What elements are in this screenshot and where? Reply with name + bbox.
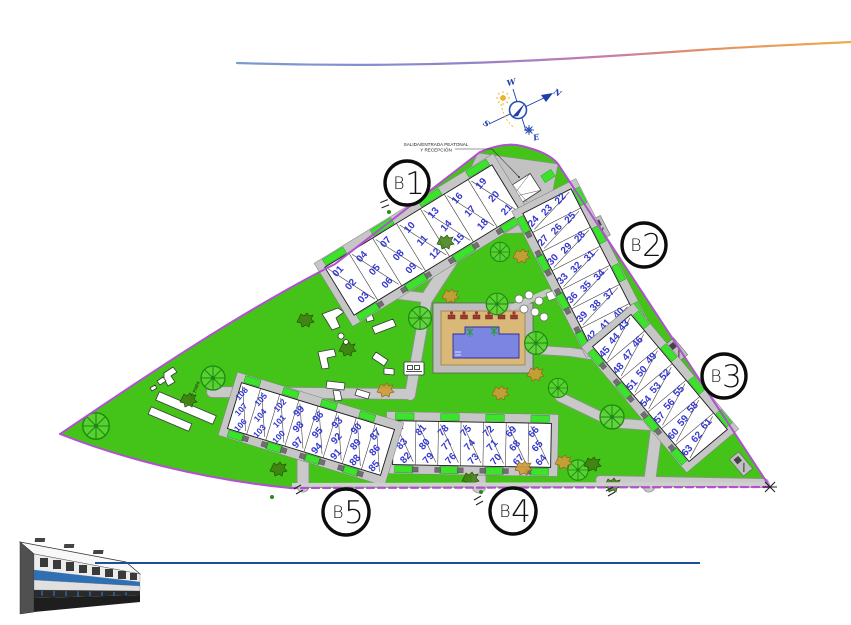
pool-area [433, 303, 533, 373]
lounger-icon [448, 315, 455, 319]
hedge-strip [440, 466, 459, 473]
seat-circle [515, 295, 523, 303]
block-label-number: 5 [344, 495, 364, 531]
block-label-prefix: B [630, 236, 641, 256]
tree-icon [486, 293, 508, 315]
block-label-B3: B3 [702, 354, 746, 398]
umbrella-icon [512, 311, 515, 314]
tree-icon [600, 405, 624, 429]
lounger-icon [498, 315, 505, 319]
stair-block [435, 467, 441, 472]
block-label-number: 3 [722, 359, 742, 395]
block-label-prefix: B [710, 367, 721, 387]
compass-w: W [506, 76, 518, 88]
compass-n: N [551, 86, 564, 99]
picnic-table-icon [404, 362, 424, 375]
sunset-star-icon [524, 125, 534, 135]
entrance-label-line2: Y RECEPCIÓN [420, 147, 452, 153]
umbrella-icon [475, 311, 478, 314]
lounger-icon [461, 315, 468, 319]
tree-icon [525, 332, 548, 355]
building-block-B4: 8483828180797877767574737271706968676665… [385, 412, 558, 477]
block-label-number: 2 [642, 228, 662, 264]
block-label-B2: B2 [622, 223, 666, 267]
hedge-strip [441, 413, 460, 420]
block-label-number: 1 [405, 166, 425, 202]
site-plan: PET PARK 0102030405060708091011121314151… [0, 0, 851, 625]
block-label-B1: B1 [385, 161, 429, 205]
seat-circle [531, 308, 539, 316]
seat-circle [520, 305, 528, 313]
hedge-strip [531, 415, 550, 422]
top-swoosh-line [237, 42, 851, 65]
block-label-B4: B4 [490, 488, 536, 534]
block-label-prefix: B [499, 502, 510, 522]
block-label-B5: B5 [323, 489, 369, 535]
lounger-icon [511, 315, 518, 319]
hedge-strip [394, 466, 413, 473]
stair-block [457, 468, 463, 473]
block-label-number: 4 [511, 494, 531, 530]
lounger-icon [473, 315, 480, 319]
lounger-icon [486, 315, 493, 319]
tree-icon [548, 378, 567, 397]
stair-block [502, 469, 508, 474]
umbrella-icon [462, 311, 465, 314]
hedge-strip [485, 467, 504, 474]
tree-icon [490, 242, 509, 261]
hedge-strip [530, 468, 549, 475]
seat-circle [535, 297, 543, 305]
entrance-label-line1: SALIDA/ENTRADA PEATONAL [404, 142, 469, 147]
stair-block [412, 467, 418, 472]
playground-table [338, 333, 344, 339]
hedge-strip [395, 413, 414, 420]
block-label-prefix: B [332, 503, 343, 523]
hedge-strip [486, 414, 505, 421]
seat-circle [540, 313, 548, 321]
umbrella-icon [450, 311, 453, 314]
tree-icon [201, 366, 225, 390]
compass-rose: N W S E [481, 76, 563, 143]
block-label-prefix: B [393, 174, 404, 194]
developer-logo [20, 538, 140, 614]
tree-icon [409, 307, 432, 330]
stair-block [480, 468, 486, 473]
seat-circle [525, 291, 533, 299]
